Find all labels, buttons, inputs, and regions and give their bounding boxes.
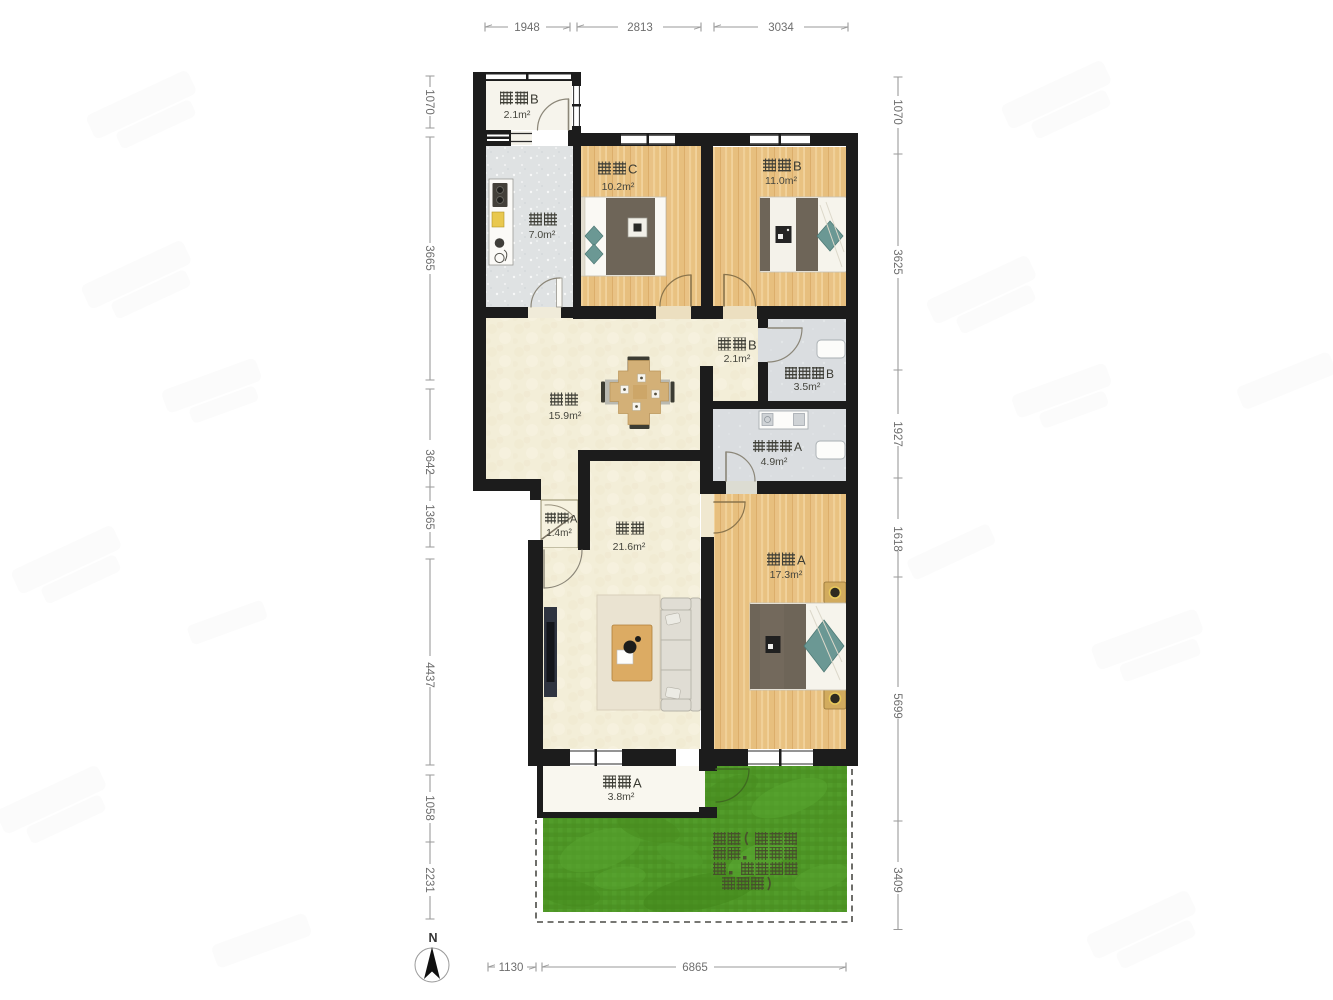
svg-text:3.5m²: 3.5m² — [794, 381, 821, 393]
svg-text:10.2m²: 10.2m² — [602, 181, 635, 193]
svg-text:15.9m²: 15.9m² — [549, 410, 582, 422]
svg-text:2813: 2813 — [627, 22, 653, 34]
svg-text:1365: 1365 — [423, 504, 435, 530]
svg-text:4437: 4437 — [423, 662, 435, 688]
svg-text:3409: 3409 — [891, 867, 903, 893]
svg-text:2.1m²: 2.1m² — [504, 109, 531, 121]
svg-text:A: A — [797, 553, 806, 568]
svg-text:3642: 3642 — [423, 449, 435, 475]
svg-text:5699: 5699 — [891, 693, 903, 719]
svg-text:21.6m²: 21.6m² — [613, 541, 646, 553]
svg-text:1618: 1618 — [891, 526, 903, 552]
svg-text:C: C — [628, 162, 637, 177]
svg-text:N: N — [428, 931, 437, 945]
svg-text:11.0m²: 11.0m² — [765, 175, 797, 187]
svg-text:B: B — [793, 159, 802, 174]
svg-text:2.1m²: 2.1m² — [724, 353, 751, 365]
svg-text:B: B — [530, 92, 539, 107]
svg-text:1070: 1070 — [891, 99, 903, 125]
svg-text:2231: 2231 — [423, 867, 435, 893]
svg-text:3625: 3625 — [891, 249, 903, 275]
svg-text:A: A — [570, 514, 578, 526]
svg-text:1070: 1070 — [423, 89, 435, 115]
svg-text:3034: 3034 — [768, 22, 794, 34]
svg-text:1927: 1927 — [891, 421, 903, 447]
svg-text:17.3m²: 17.3m² — [770, 569, 803, 581]
svg-text:3.8m²: 3.8m² — [608, 791, 635, 803]
svg-text:A: A — [794, 440, 802, 454]
svg-text:1.4m²: 1.4m² — [546, 528, 572, 539]
svg-text:A: A — [633, 776, 642, 791]
svg-text:4.9m²: 4.9m² — [761, 456, 788, 468]
svg-text:7.0m²: 7.0m² — [529, 229, 556, 241]
svg-text:6865: 6865 — [682, 962, 708, 974]
svg-text:3665: 3665 — [423, 245, 435, 271]
svg-text:1948: 1948 — [514, 22, 540, 34]
svg-text:B: B — [826, 367, 834, 381]
svg-text:1130: 1130 — [499, 962, 524, 974]
svg-text:1058: 1058 — [423, 795, 435, 821]
svg-text:B: B — [748, 338, 757, 353]
